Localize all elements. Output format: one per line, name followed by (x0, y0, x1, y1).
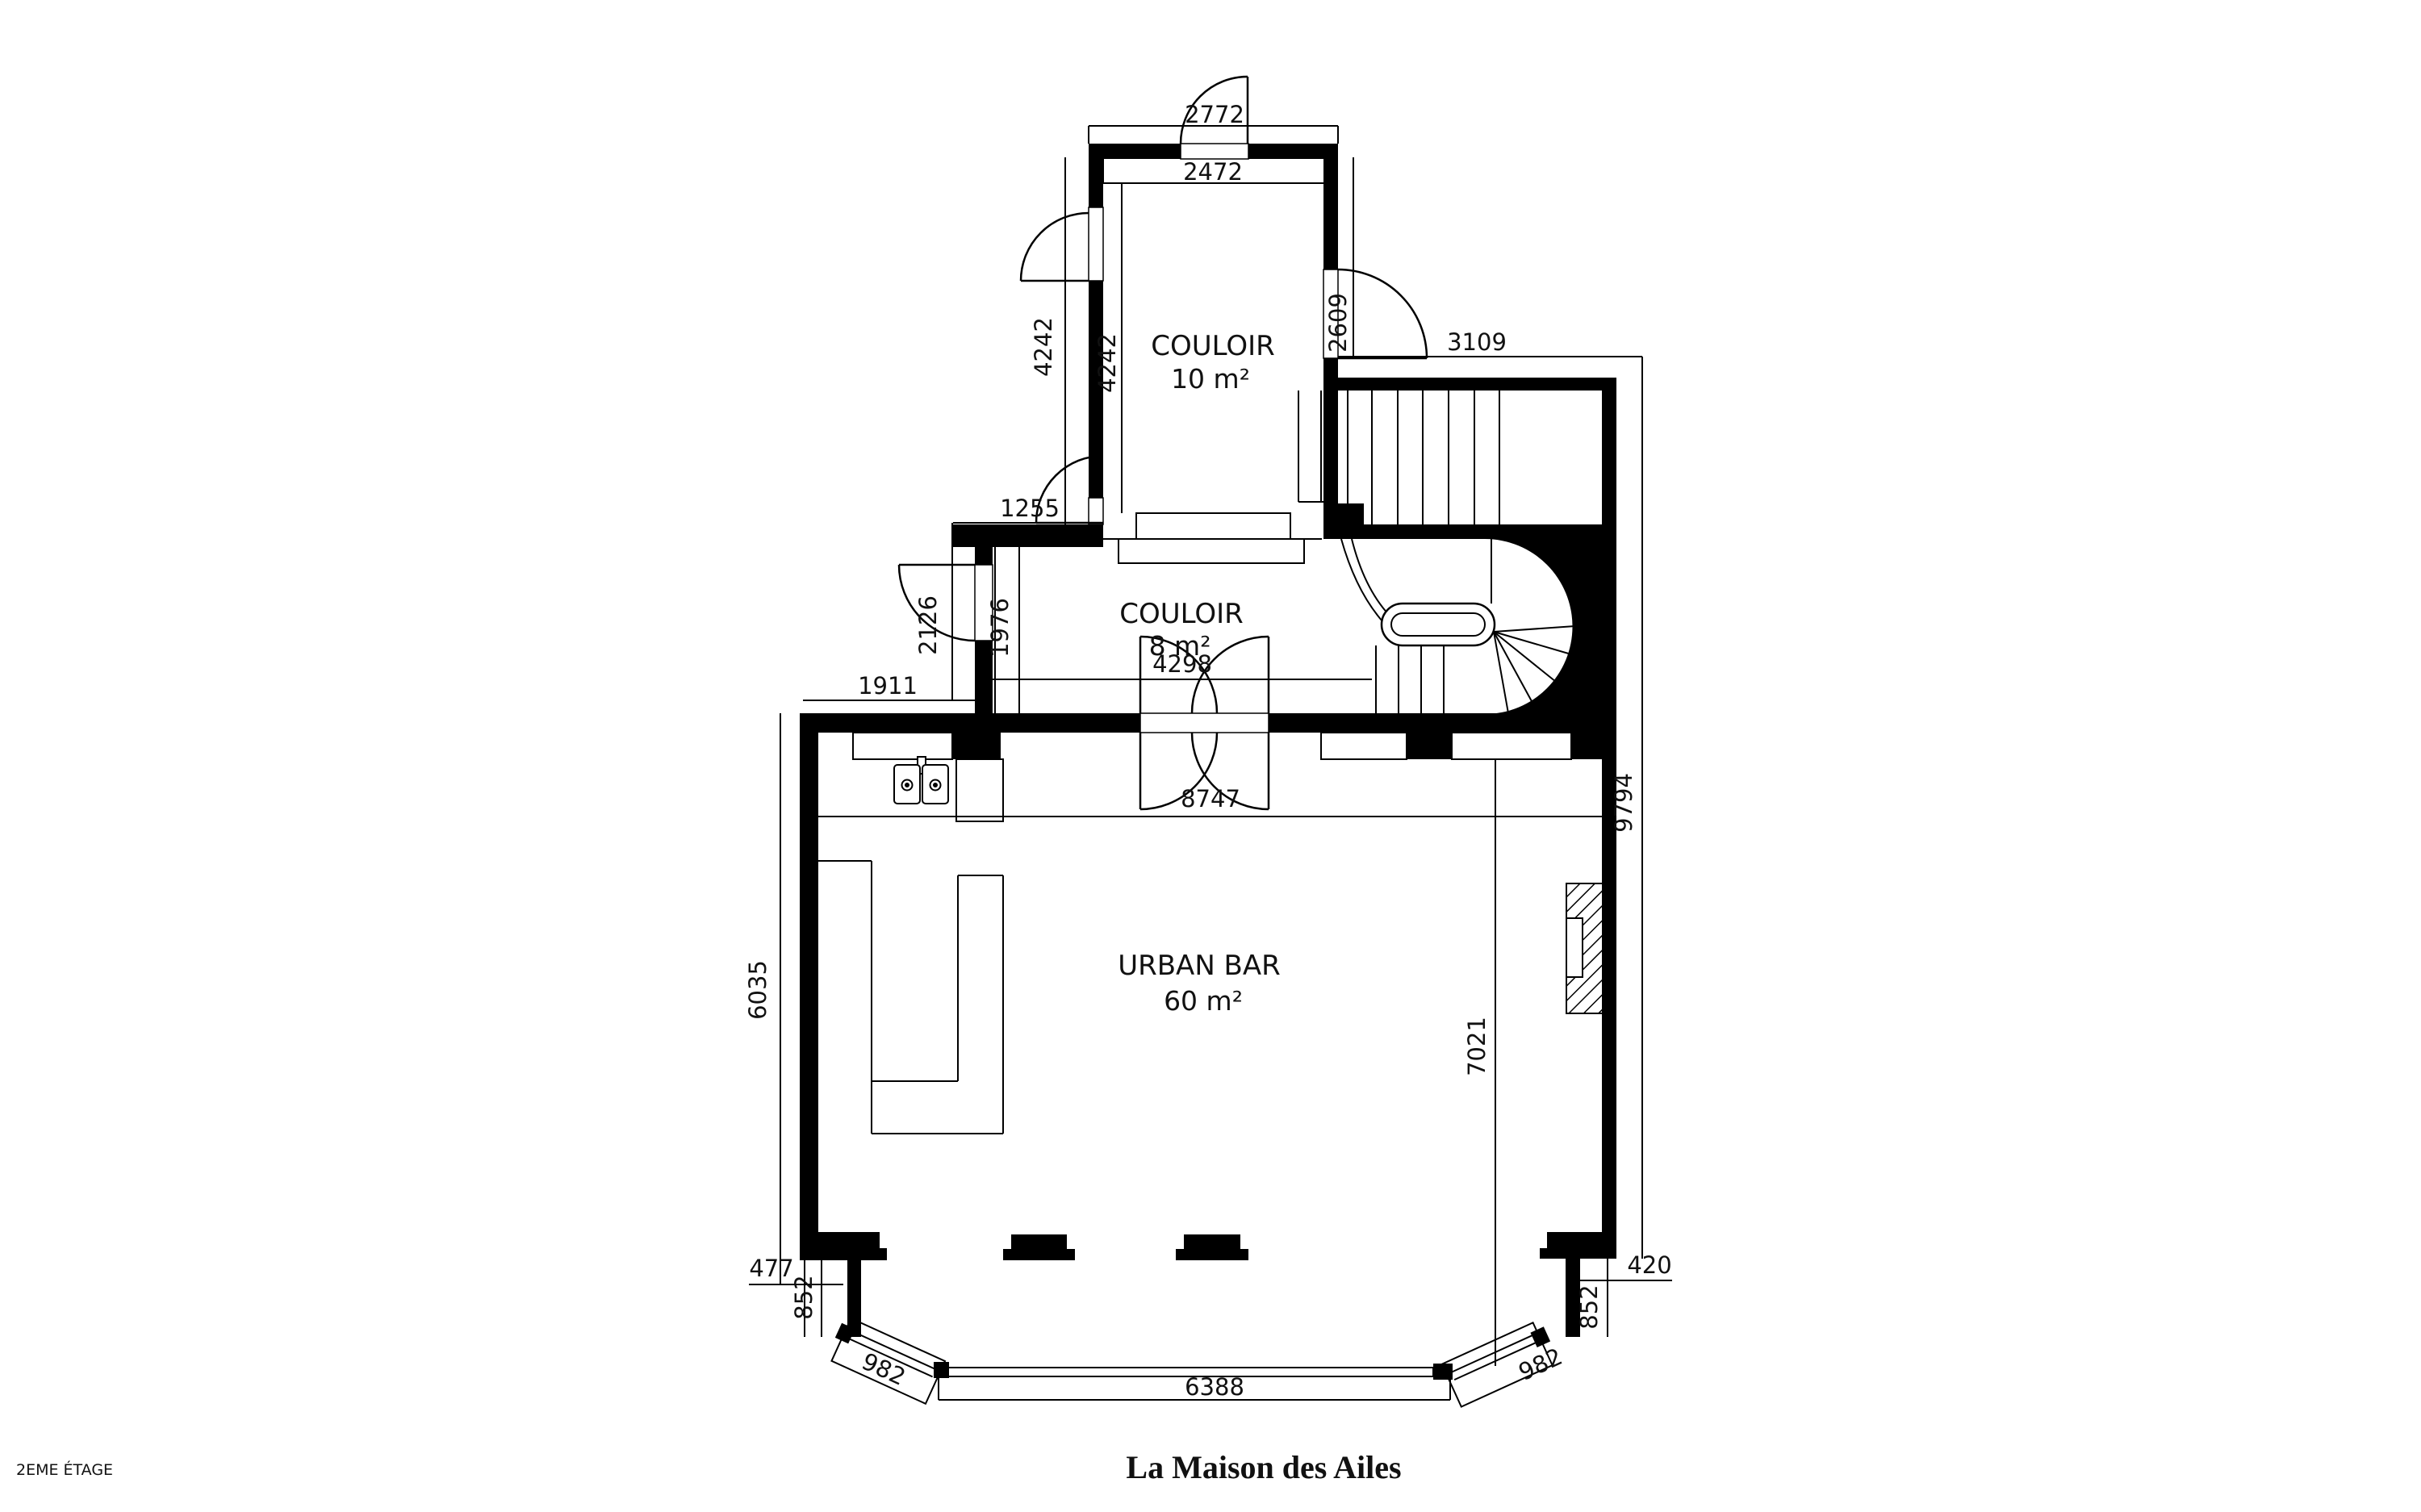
dim-couloir10-height-inner: 4242 (1093, 333, 1121, 393)
dim-stair-width: 3109 (1447, 328, 1507, 356)
floor-plan-svg: 2772 2472 4242 4242 2609 3109 1255 2126 … (0, 0, 2421, 1512)
floor-label: 2EME ÉTAGE (16, 1460, 113, 1479)
room-label-couloir-10: COULOIR (1151, 330, 1275, 362)
bar-counter (818, 759, 1003, 1134)
flue-hatch (1566, 883, 1603, 1013)
dim-top-outer-width: 2772 (1185, 101, 1244, 128)
page-title: La Maison des Ailes (1126, 1449, 1401, 1485)
dim-couloir10-height-outer: 4242 (1030, 317, 1057, 377)
room-area-couloir-10: 10 m² (1171, 363, 1250, 395)
floor-plan-page: 2772 2472 4242 4242 2609 3109 1255 2126 … (0, 0, 2421, 1512)
bench (1119, 513, 1304, 563)
dim-couloir8-left-wall: 2126 (914, 595, 942, 655)
room-area-urban-bar: 60 m² (1164, 985, 1243, 1017)
dim-bar-interior-height: 7021 (1463, 1017, 1491, 1076)
sink-icon (894, 757, 948, 804)
dim-couloir10-width: 2472 (1183, 158, 1243, 186)
dim-right-height: 9794 (1610, 773, 1637, 833)
dim-front-window: 6388 (1185, 1373, 1244, 1401)
dim-bar-left-height: 6035 (744, 960, 771, 1020)
dim-right-corner-offset: 420 (1627, 1251, 1671, 1279)
dim-couloir8-height: 1976 (986, 598, 1014, 658)
room-label-couloir-8: COULOIR (1119, 598, 1244, 630)
dim-left-offset: 1911 (858, 672, 918, 700)
room-label-urban-bar: URBAN BAR (1118, 950, 1281, 982)
labels: 2772 2472 4242 4242 2609 3109 1255 2126 … (16, 101, 1672, 1485)
dim-couloir8-top-wall: 1255 (1000, 495, 1060, 522)
dim-left-corner-offset: 477 (749, 1255, 793, 1282)
dim-right-door: 2609 (1324, 293, 1352, 353)
dim-left-corner-height: 852 (790, 1275, 817, 1319)
dim-bar-width: 8747 (1181, 785, 1240, 812)
door-left-upper (1021, 213, 1089, 281)
dim-right-corner-height: 852 (1575, 1284, 1603, 1329)
room-area-couloir-8: 8 m² (1149, 630, 1211, 662)
